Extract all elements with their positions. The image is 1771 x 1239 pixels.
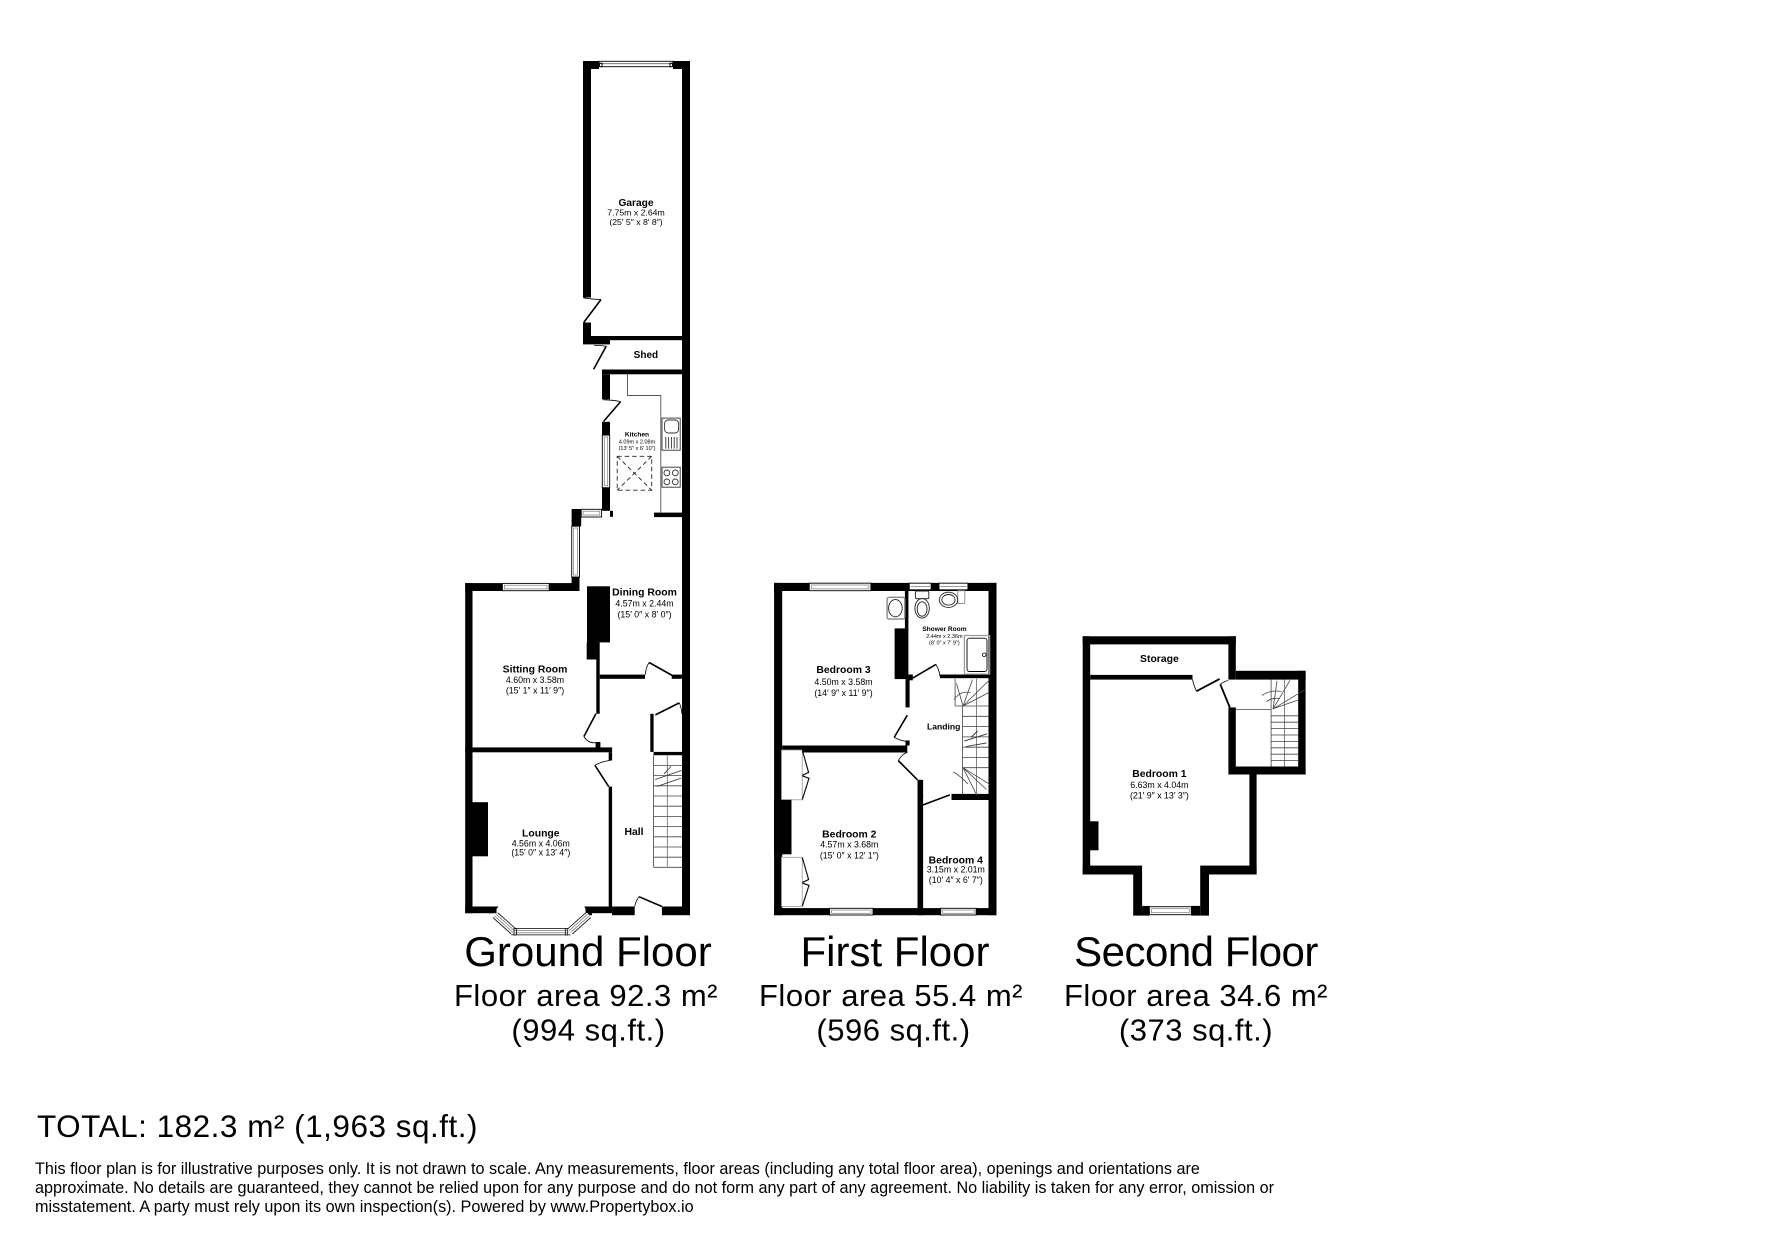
- svg-text:4.60m x 3.58m: 4.60m x 3.58m: [506, 675, 564, 685]
- svg-text:(14′ 9″ x 11′ 9″): (14′ 9″ x 11′ 9″): [814, 688, 872, 698]
- svg-text:First Floor: First Floor: [801, 928, 990, 975]
- svg-text:Bedroom 1: Bedroom 1: [1132, 769, 1186, 780]
- svg-text:misstatement. A party must rel: misstatement. A party must rely upon its…: [35, 1198, 694, 1216]
- svg-text:(25′ 5″ x 8′ 8″): (25′ 5″ x 8′ 8″): [609, 217, 662, 227]
- svg-text:4.50m x 3.58m: 4.50m x 3.58m: [814, 677, 872, 687]
- svg-text:(596 sq.ft.): (596 sq.ft.): [816, 1013, 970, 1048]
- svg-text:Landing: Landing: [927, 721, 960, 731]
- svg-text:Shed: Shed: [634, 350, 658, 361]
- svg-text:(15′ 0″ x 12′ 1″): (15′ 0″ x 12′ 1″): [820, 851, 879, 861]
- svg-text:approximate. No details are gu: approximate. No details are guaranteed, …: [35, 1179, 1275, 1197]
- svg-text:Kitchen: Kitchen: [625, 432, 649, 439]
- svg-text:3.15m x 2.01m: 3.15m x 2.01m: [927, 865, 985, 875]
- svg-text:(13′ 5″ x 6′ 10″): (13′ 5″ x 6′ 10″): [619, 446, 656, 452]
- svg-text:Ground Floor: Ground Floor: [464, 928, 711, 975]
- svg-text:(10′ 4″ x 6′ 7″): (10′ 4″ x 6′ 7″): [929, 875, 983, 885]
- svg-text:TOTAL: 182.3 m² (1,963 sq.ft.): TOTAL: 182.3 m² (1,963 sq.ft.): [37, 1108, 478, 1144]
- svg-text:(8′ 0″ x 7′ 9″): (8′ 0″ x 7′ 9″): [929, 640, 960, 646]
- svg-text:7.75m x 2.64m: 7.75m x 2.64m: [607, 208, 664, 218]
- svg-text:4.57m x 3.68m: 4.57m x 3.68m: [820, 840, 878, 850]
- svg-text:2.44m x 2.36m: 2.44m x 2.36m: [926, 634, 963, 640]
- svg-text:Hall: Hall: [624, 827, 643, 838]
- svg-text:(994 sq.ft.): (994 sq.ft.): [511, 1013, 665, 1048]
- svg-text:Floor area 55.4 m²: Floor area 55.4 m²: [759, 978, 1023, 1013]
- svg-text:4.57m x 2.44m: 4.57m x 2.44m: [615, 599, 673, 609]
- svg-text:Dining Room: Dining Room: [612, 587, 677, 598]
- svg-text:Sitting Room: Sitting Room: [503, 664, 568, 675]
- svg-text:Floor area 34.6 m²: Floor area 34.6 m²: [1064, 978, 1328, 1013]
- svg-text:(15′ 1″ x 11′ 9″): (15′ 1″ x 11′ 9″): [506, 686, 564, 696]
- svg-text:(21′ 9″ x 13′ 3″): (21′ 9″ x 13′ 3″): [1130, 791, 1189, 801]
- svg-text:(373 sq.ft.): (373 sq.ft.): [1119, 1013, 1273, 1048]
- svg-text:(15′ 0″ x 8′ 0″): (15′ 0″ x 8′ 0″): [617, 609, 671, 619]
- svg-text:Bedroom 3: Bedroom 3: [816, 665, 870, 676]
- svg-text:(15′ 0″ x 13′ 4″): (15′ 0″ x 13′ 4″): [511, 847, 570, 857]
- svg-text:This floor plan is for illustr: This floor plan is for illustrative purp…: [35, 1160, 1200, 1178]
- svg-text:4.09m x 2.08m: 4.09m x 2.08m: [619, 440, 656, 446]
- svg-text:Second Floor: Second Floor: [1074, 928, 1318, 975]
- svg-text:Shower Room: Shower Room: [922, 626, 966, 633]
- svg-text:Floor area 92.3 m²: Floor area 92.3 m²: [454, 978, 718, 1013]
- svg-text:6.63m x 4.04m: 6.63m x 4.04m: [1130, 780, 1188, 790]
- svg-text:Storage: Storage: [1140, 654, 1179, 665]
